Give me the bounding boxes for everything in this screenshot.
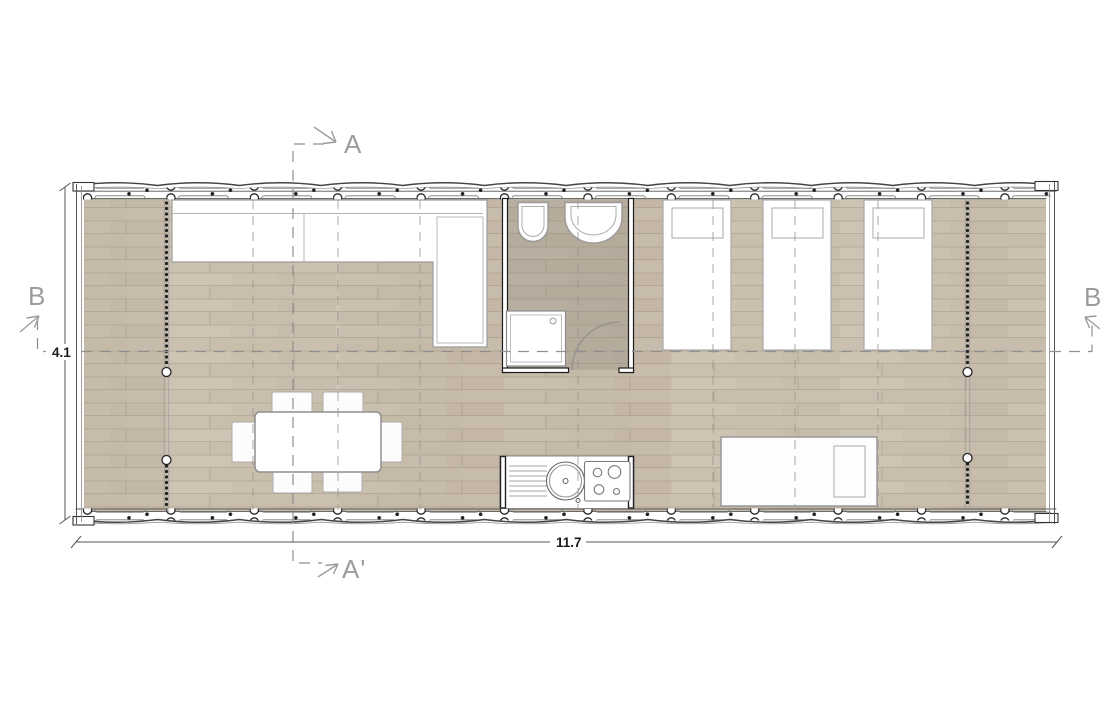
daybed bbox=[721, 437, 877, 506]
section-label-a-prime: A' bbox=[342, 554, 366, 584]
dimension-length-value: 11.7 bbox=[556, 535, 582, 550]
wall-bottom bbox=[73, 509, 1058, 526]
floor-plan: A A' B B' 4.1 11.7 bbox=[0, 0, 1100, 702]
pillow bbox=[873, 208, 924, 238]
section-label-a: A bbox=[344, 129, 362, 159]
bathroom-wall-right bbox=[629, 199, 634, 373]
chair bbox=[323, 392, 363, 414]
pillow bbox=[772, 208, 823, 238]
pillow bbox=[672, 208, 723, 238]
beds bbox=[663, 200, 932, 350]
wall-left bbox=[77, 184, 82, 524]
section-arrow-a-bottom bbox=[318, 564, 338, 577]
chair bbox=[272, 392, 312, 414]
dimension-height-value: 4.1 bbox=[52, 345, 71, 360]
section-label-b-prime: B' bbox=[1084, 282, 1100, 312]
floor-plan-canvas: A A' B B' 4.1 11.7 bbox=[0, 0, 1100, 702]
bed-1 bbox=[663, 200, 731, 350]
end-panel bbox=[501, 457, 506, 509]
shower-drain bbox=[550, 318, 556, 324]
section-label-b: B bbox=[28, 281, 46, 311]
grommet-strip-bottom bbox=[83, 509, 1051, 521]
membrane-wave-bottom-2 bbox=[76, 522, 1056, 524]
door-jamb bbox=[619, 368, 634, 373]
bed-2 bbox=[763, 200, 831, 350]
section-arrow-a-top bbox=[314, 127, 336, 144]
toilet bbox=[518, 203, 548, 242]
wall-top bbox=[73, 182, 1058, 200]
cooktop bbox=[585, 462, 631, 502]
shower bbox=[507, 311, 566, 366]
chair bbox=[379, 422, 402, 462]
membrane-wave-top bbox=[76, 183, 1056, 186]
chair bbox=[323, 470, 362, 492]
pillow bbox=[834, 446, 865, 497]
dining-table bbox=[255, 412, 381, 472]
section-arrow-b-left bbox=[20, 316, 39, 332]
wall-right bbox=[1050, 182, 1055, 524]
bathroom-wall-bottom bbox=[503, 368, 569, 373]
bed-3 bbox=[864, 200, 932, 350]
grommet-strip-top bbox=[83, 188, 1051, 200]
kitchenette bbox=[500, 456, 634, 509]
